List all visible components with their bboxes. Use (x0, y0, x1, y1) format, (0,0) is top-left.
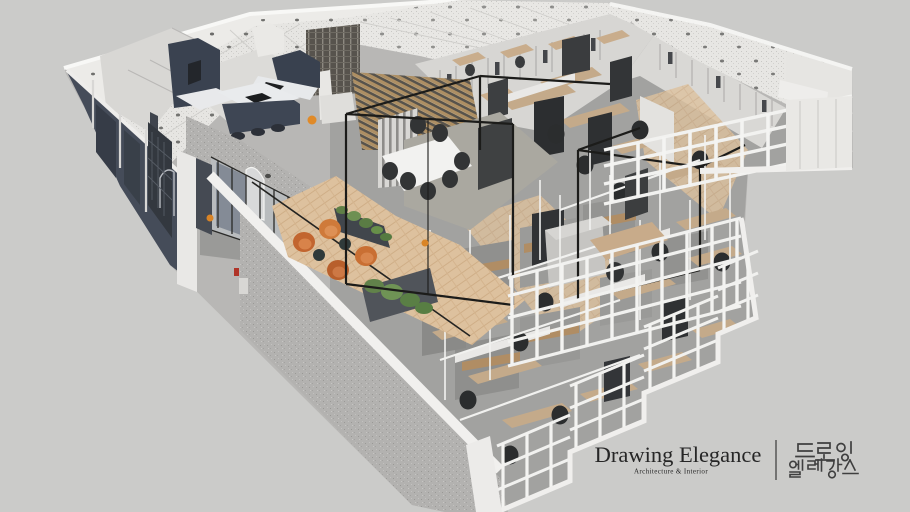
svg-text:Drawing Elegance: Drawing Elegance (595, 442, 762, 467)
svg-text:Architecture & Interior: Architecture & Interior (634, 468, 708, 476)
